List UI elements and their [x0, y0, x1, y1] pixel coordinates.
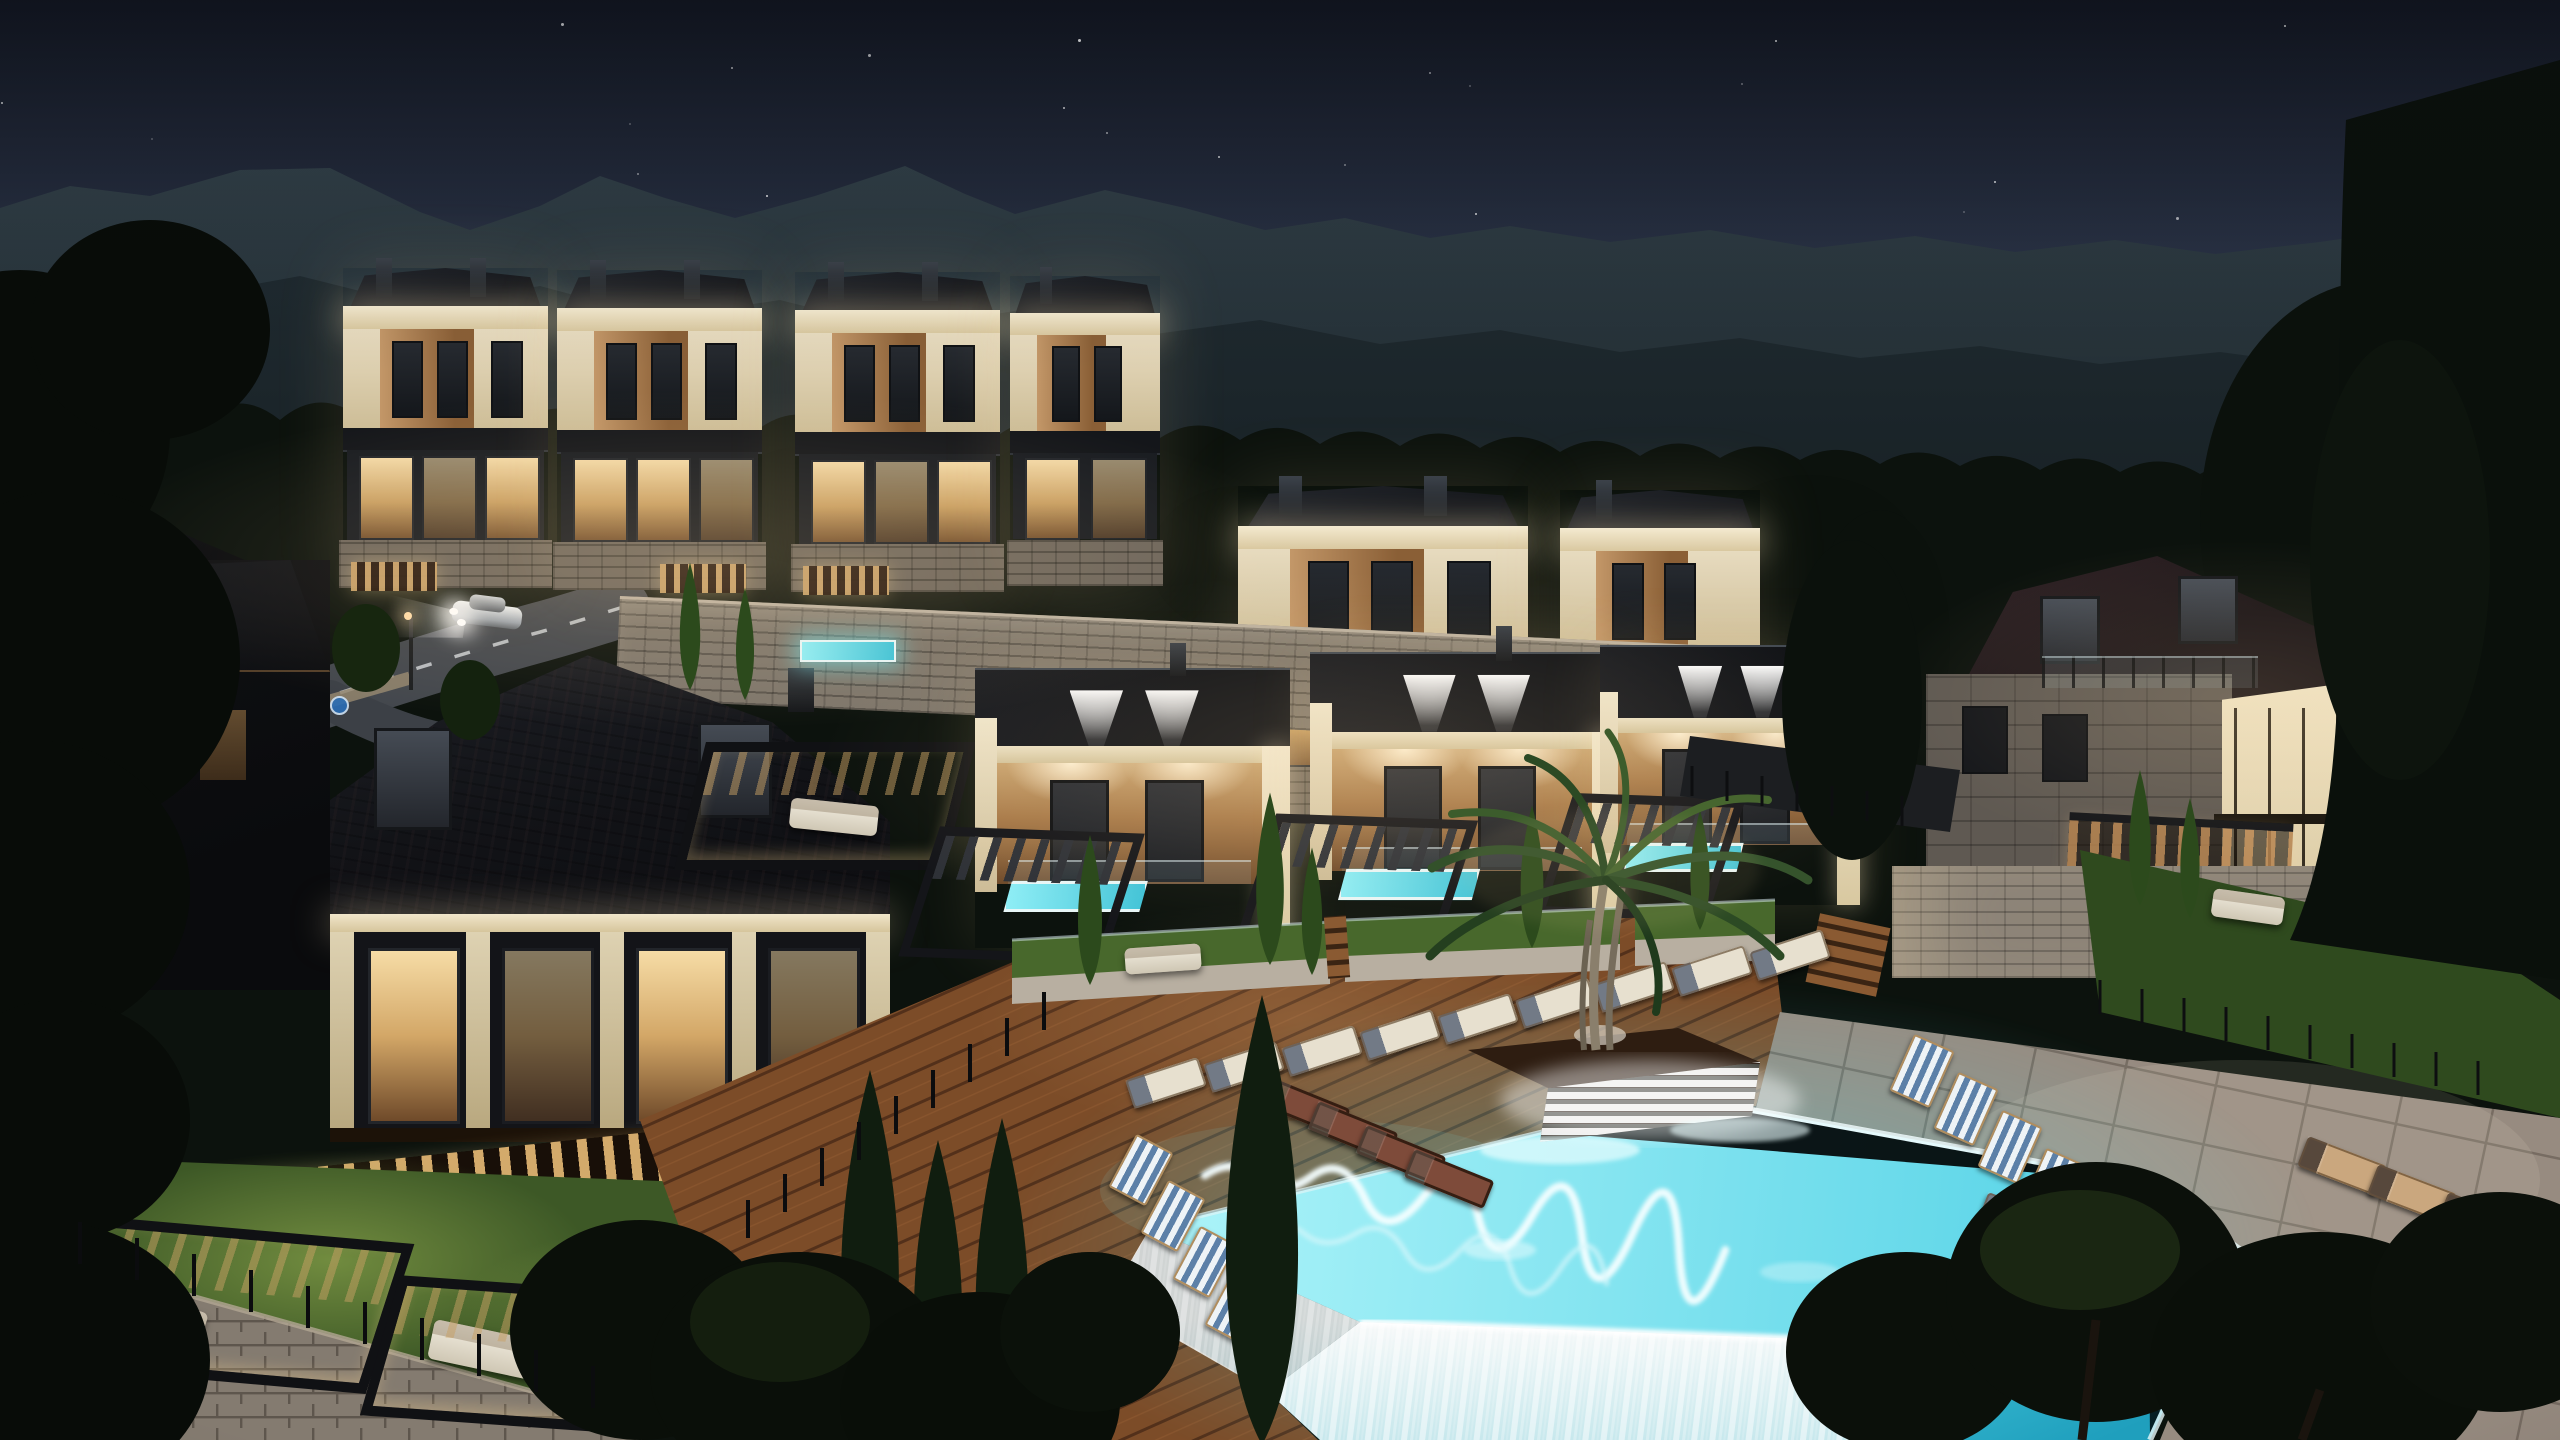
cube-garden-sofa	[1124, 943, 1202, 974]
lit-fascia	[1010, 313, 1160, 335]
duplex-facade	[330, 932, 890, 1128]
star	[1063, 107, 1065, 109]
star	[1429, 72, 1431, 74]
roof-parapet	[975, 668, 1290, 754]
window	[943, 345, 976, 422]
roof-dormer	[1424, 476, 1447, 516]
star	[1963, 211, 1965, 213]
roof-parapet	[1600, 645, 1860, 725]
stone-base-wall	[1892, 866, 2362, 978]
glass-door	[422, 456, 477, 541]
window	[1447, 561, 1492, 641]
concrete-beam	[1618, 718, 1842, 734]
glass-door	[636, 948, 728, 1124]
duplex-dark-wing	[0, 560, 330, 990]
star	[1905, 324, 1907, 326]
window	[889, 345, 920, 422]
star	[561, 23, 564, 26]
star	[1475, 213, 1477, 215]
villa-grand-duplex	[330, 650, 890, 1190]
chimney	[788, 668, 814, 712]
upper-storey	[1010, 335, 1160, 431]
star	[151, 138, 153, 140]
glass-door	[502, 948, 594, 1124]
lit-fascia	[1560, 528, 1760, 550]
glass-door	[768, 948, 860, 1124]
glass-door	[699, 458, 754, 543]
lower-storey-glazing	[1013, 453, 1157, 540]
window	[1094, 346, 1122, 421]
window	[1371, 561, 1413, 641]
star	[1741, 83, 1743, 85]
cube-villa-1	[975, 668, 1290, 948]
stone-pillar	[600, 932, 624, 1128]
star	[2093, 301, 2095, 303]
star	[1218, 156, 1220, 158]
star	[706, 220, 708, 222]
roof-dormer	[1279, 476, 1302, 516]
black-pergola	[1535, 793, 1746, 921]
glass-door	[636, 458, 691, 543]
star	[1496, 234, 1499, 237]
roof-parapet	[1310, 652, 1620, 740]
villa-upper-1	[343, 268, 548, 588]
wing-window	[200, 710, 246, 780]
glass-door	[874, 460, 929, 545]
star	[1355, 313, 1357, 315]
star	[731, 67, 733, 69]
window	[437, 341, 468, 418]
roof-dormer	[1596, 480, 1612, 518]
upper-storey	[1560, 551, 1760, 650]
star	[1775, 40, 1777, 42]
star	[2495, 92, 2497, 94]
star	[766, 284, 768, 286]
truck-cab	[1833, 710, 1860, 725]
window	[651, 343, 682, 420]
person-figure	[58, 534, 66, 555]
garden-pergola-frame	[46, 1216, 415, 1394]
wing-roof	[0, 560, 330, 672]
roof-dormer	[922, 262, 938, 300]
headlight	[457, 618, 467, 626]
roof-dormer	[1040, 267, 1052, 304]
entry-pergola	[660, 564, 746, 593]
stone-pillar	[466, 932, 490, 1128]
window	[1052, 346, 1080, 421]
star	[1344, 164, 1346, 166]
lit-fascia	[795, 310, 1000, 332]
star	[2386, 162, 2388, 164]
upper-storey	[795, 333, 1000, 432]
villa-right-detached	[1892, 556, 2362, 1026]
window	[392, 341, 423, 418]
lit-fascia	[557, 308, 762, 330]
lit-fascia	[343, 306, 548, 328]
star	[204, 278, 206, 280]
night-villa-resort-render	[0, 0, 2560, 1440]
stone-pillar	[732, 932, 756, 1128]
villa-roof	[1566, 490, 1754, 532]
stone-pillar	[330, 932, 354, 1128]
villa-upper-4	[1010, 276, 1160, 586]
star	[904, 258, 906, 260]
roof-dormer	[376, 258, 392, 296]
star	[2176, 217, 2179, 220]
roof-dormer	[2040, 596, 2100, 664]
concrete-beam	[1332, 732, 1599, 749]
wing-window	[120, 730, 156, 786]
star	[766, 195, 768, 197]
glass-door	[368, 948, 460, 1124]
balcony-slab	[1010, 431, 1160, 455]
concrete-beam	[997, 746, 1268, 763]
roof-dormer	[684, 260, 700, 298]
roof-terrace-glass-railing	[2042, 656, 2258, 688]
window	[606, 343, 637, 420]
lit-fascia	[330, 914, 890, 932]
star	[1, 102, 3, 104]
villa-upper-2	[557, 270, 762, 590]
roof-dormer	[374, 728, 452, 830]
balcony-slab	[557, 430, 762, 454]
glass-door	[573, 458, 628, 543]
balcony-slab	[343, 428, 548, 452]
star	[1469, 85, 1471, 87]
glass-door	[359, 456, 414, 541]
villa-roof	[1015, 276, 1156, 316]
window	[491, 341, 524, 418]
star	[629, 123, 631, 125]
garden-pergola-frame	[360, 1275, 680, 1435]
glass-door	[1025, 458, 1081, 540]
glass-door	[811, 460, 866, 545]
star	[305, 296, 307, 298]
star	[868, 54, 871, 57]
window	[1612, 563, 1644, 640]
roof-dormer	[2178, 576, 2238, 644]
lit-fascia	[1238, 526, 1528, 549]
terrace-plunge-pool	[800, 640, 896, 662]
window	[705, 343, 738, 420]
lower-storey-glazing	[799, 454, 996, 544]
villa-upper-3	[795, 272, 1000, 592]
stone-base	[1007, 540, 1163, 587]
upper-storey	[343, 329, 548, 428]
balcony-slab	[795, 432, 1000, 456]
star	[2348, 328, 2350, 330]
window	[1664, 563, 1696, 640]
entry-pergola	[351, 562, 437, 591]
glass-door	[485, 456, 540, 541]
black-pergola	[1234, 814, 1478, 953]
star	[151, 315, 153, 317]
roof-dormer	[470, 258, 486, 296]
star	[163, 223, 165, 225]
star	[2553, 75, 2556, 78]
pickup-truck-red	[1823, 718, 1903, 754]
window	[1962, 706, 2008, 774]
star	[637, 173, 639, 175]
roof-vent	[1170, 643, 1186, 677]
star	[2284, 25, 2286, 27]
lower-storey-glazing	[347, 450, 544, 540]
entry-pergola	[803, 566, 889, 595]
star	[1694, 294, 1697, 297]
window	[2042, 714, 2088, 782]
star	[1078, 39, 1081, 42]
glass-door	[937, 460, 992, 545]
star	[1106, 132, 1108, 134]
window	[844, 345, 875, 422]
star	[1165, 279, 1167, 281]
roof-dormer	[590, 260, 606, 298]
star	[1994, 181, 1996, 183]
star	[1725, 333, 1728, 336]
car-driving	[450, 592, 524, 638]
lower-storey-glazing	[561, 452, 758, 542]
glass-door	[1091, 458, 1147, 540]
stone-pillar	[866, 932, 890, 1128]
roof-vent	[1496, 626, 1512, 660]
star	[70, 258, 73, 261]
star	[1496, 320, 1498, 322]
roof-dormer	[828, 262, 844, 300]
upper-storey	[557, 331, 762, 430]
black-pergola	[899, 827, 1146, 964]
